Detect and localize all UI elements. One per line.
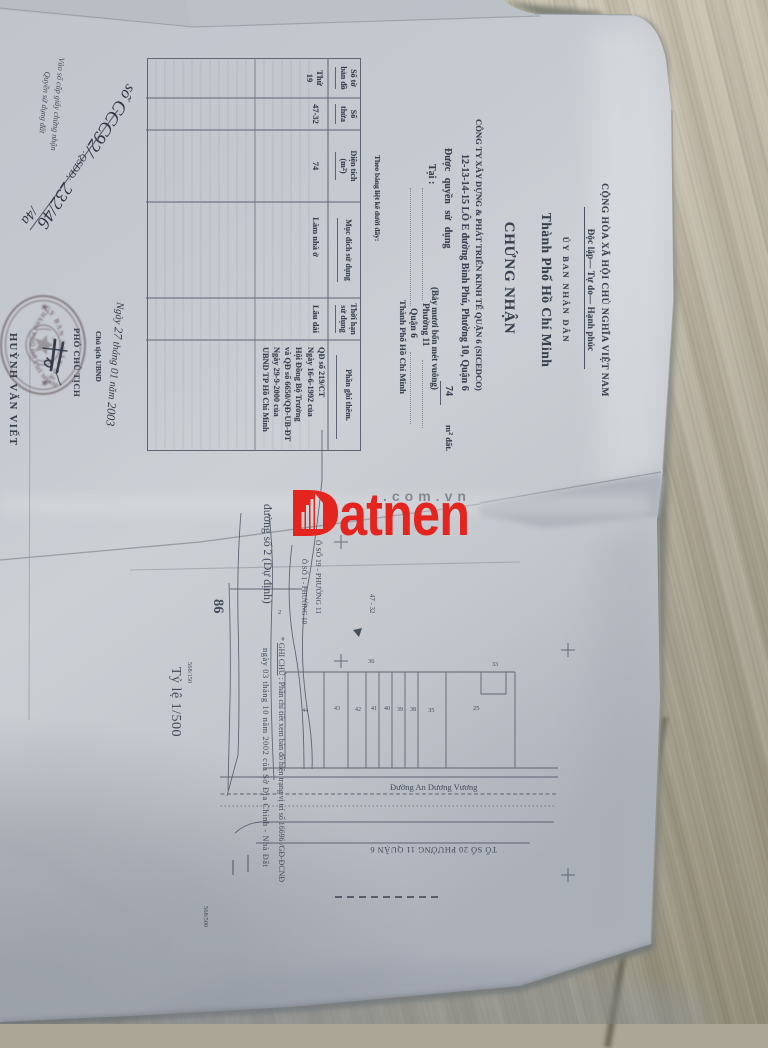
svg-text:568/150: 568/150: [186, 662, 193, 683]
svg-text:86: 86: [210, 599, 226, 614]
svg-text:42: 42: [355, 707, 361, 713]
svg-text:568/500: 568/500: [202, 906, 209, 927]
svg-text:40: 40: [384, 706, 390, 712]
svg-text:Ô SỐ 1 - PHƯỜNG 10: Ô SỐ 1 - PHƯỜNG 10: [300, 559, 308, 625]
svg-text:TỔ SỐ 20 PHƯỜNG 11 QUẬN 6: TỔ SỐ 20 PHƯỜNG 11 QUẬN 6: [370, 845, 497, 855]
svg-text:2: 2: [278, 609, 281, 616]
svg-text:41: 41: [371, 706, 377, 712]
svg-text:25: 25: [473, 705, 480, 712]
svg-text:39: 39: [397, 707, 403, 713]
svg-text:38: 38: [410, 707, 416, 713]
svg-text:Đường An Dương Vương: Đường An Dương Vương: [390, 782, 478, 792]
svg-text:33: 33: [492, 662, 498, 668]
svg-text:47 - 32: 47 - 32: [368, 594, 375, 614]
svg-text:đường số 2 (Dự định): đường số 2 (Dự định): [261, 504, 274, 604]
svg-text:ngày 03 tháng 10 năm 20: ngày 03 tháng 10 năm 2002 của Sở Địa Chí…: [261, 648, 270, 868]
svg-text:Ô SỐ 19 - PHƯỜNG 11: Ô SỐ 19 - PHƯỜNG 11: [314, 540, 324, 614]
svg-text:36: 36: [368, 658, 375, 665]
svg-text:43: 43: [334, 706, 340, 712]
svg-text:atnen: atnen: [339, 481, 469, 542]
svg-text:44: 44: [302, 708, 308, 714]
svg-text:35: 35: [428, 707, 435, 714]
svg-text:* GHI CHÚ : Phần chi tiết xem: * GHI CHÚ : Phần chi tiết xem bản đồ hiệ…: [277, 637, 287, 882]
svg-text:Tỷ lệ 1/500: Tỷ lệ 1/500: [168, 667, 183, 737]
